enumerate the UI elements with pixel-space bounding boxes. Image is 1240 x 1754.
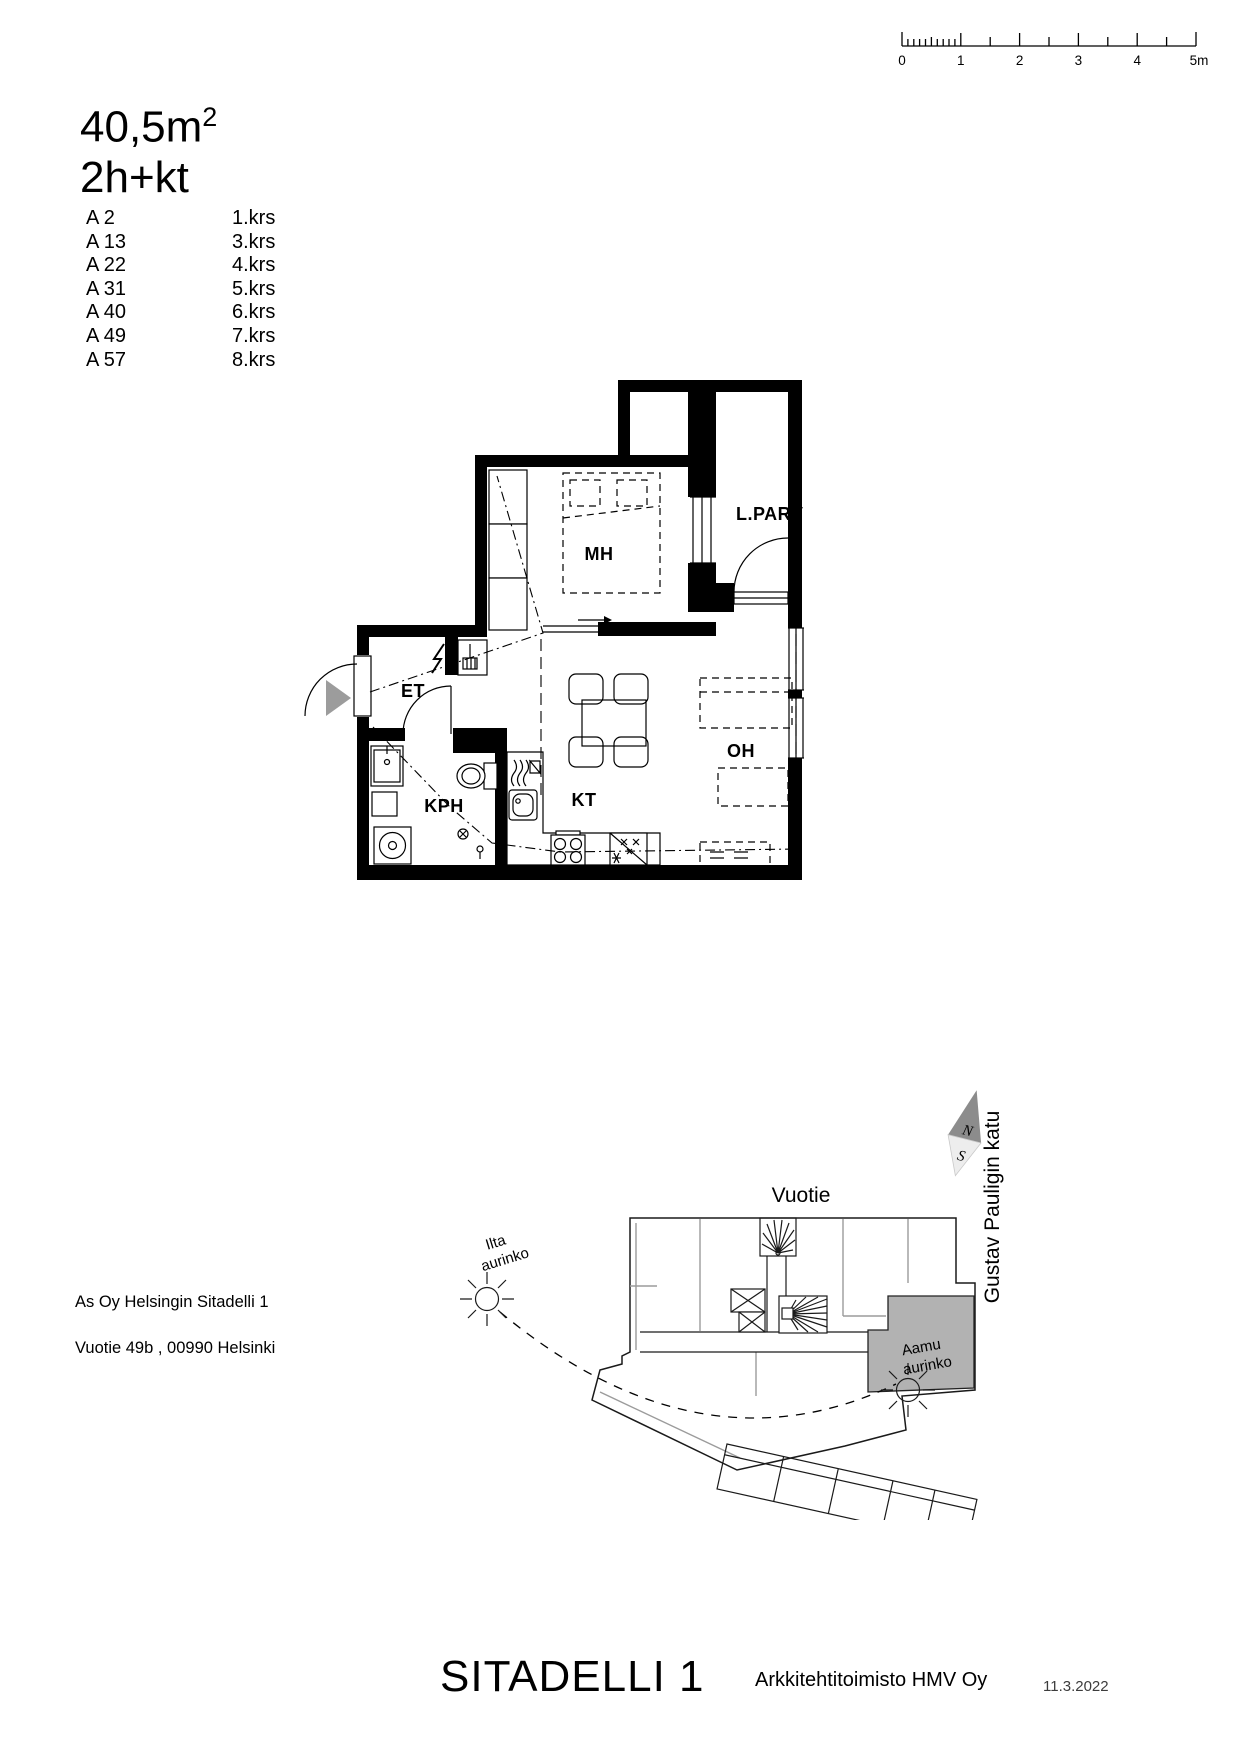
dining-set xyxy=(569,674,648,767)
street-label-gustav-pauligin-katu: Gustav Pauligin katu xyxy=(981,1111,1004,1304)
unit-floor: 7.krs xyxy=(232,325,275,347)
unit-floor: 1.krs xyxy=(232,207,275,229)
sofa xyxy=(700,678,792,728)
evening-sun-icon xyxy=(460,1272,514,1326)
floor-plan: MH L.PARV ET KPH KT OH xyxy=(280,365,810,890)
dishwasher xyxy=(610,833,647,865)
unit-id: A 2 xyxy=(86,207,232,231)
sliding-door-opening xyxy=(543,626,598,632)
project-title: SITADELLI 1 xyxy=(440,1652,705,1702)
area-exponent: 2 xyxy=(202,102,217,132)
stair-tower xyxy=(760,1218,796,1256)
apartment-row: A 406.krs xyxy=(86,301,275,325)
street-label-vuotie: Vuotie xyxy=(772,1184,831,1207)
unit-id: A 57 xyxy=(86,349,232,373)
floor-plan-sheet: 40,5m2 2h+kt A 21.krs A 133.krs A 224.kr… xyxy=(0,0,1240,1754)
apartment-row: A 133.krs xyxy=(86,231,275,255)
unit-floor: 5.krs xyxy=(232,278,275,300)
scale-label: 1 xyxy=(957,53,965,68)
room-label-balcony: L.PARV xyxy=(736,504,803,524)
stove xyxy=(551,831,585,865)
entry-direction-arrow xyxy=(326,680,351,716)
unit-id: A 31 xyxy=(86,278,232,302)
apartment-row: A 224.krs xyxy=(86,254,275,278)
scale-label: 5m xyxy=(1190,53,1209,68)
housing-company-name: As Oy Helsingin Sitadelli 1 xyxy=(75,1292,269,1312)
scale-ruler xyxy=(902,32,1196,46)
apartment-row: A 21.krs xyxy=(86,207,275,231)
street-address: Vuotie 49b , 00990 Helsinki xyxy=(75,1338,275,1358)
apartment-row: A 497.krs xyxy=(86,325,275,349)
sun-path-arc xyxy=(500,1312,896,1418)
window-bedroom-balcony xyxy=(690,497,716,563)
room-label-bathroom: KPH xyxy=(424,796,464,816)
elevator-shaft xyxy=(731,1289,765,1332)
scale-label: 3 xyxy=(1075,53,1083,68)
apartment-layout: 2h+kt xyxy=(80,153,217,203)
site-plan: N S Vuotie Gustav Pauligin katu Ilta aur… xyxy=(430,1080,1030,1520)
drawing-date: 11.3.2022 xyxy=(1043,1678,1109,1695)
balcony-door xyxy=(734,538,788,604)
toilet xyxy=(457,763,497,789)
apartment-area: 40,5m2 xyxy=(80,92,217,153)
shower-valve xyxy=(477,846,483,859)
apartment-list: A 21.krs A 133.krs A 224.krs A 315.krs A… xyxy=(86,207,275,372)
title-block: 40,5m2 2h+kt xyxy=(80,92,217,203)
scale-bar: 0 1 2 3 4 5m xyxy=(898,28,1218,74)
unit-floor: 3.krs xyxy=(232,231,275,253)
unit-id: A 49 xyxy=(86,325,232,349)
bathroom-cabinet xyxy=(372,792,397,816)
unit-floor: 8.krs xyxy=(232,349,275,371)
room-label-bedroom: MH xyxy=(585,544,614,564)
electrical-symbol xyxy=(432,644,444,673)
bed xyxy=(563,473,660,593)
unit-floor: 6.krs xyxy=(232,301,275,323)
apartment-row: A 578.krs xyxy=(86,349,275,373)
bathroom-sink xyxy=(371,746,403,786)
floor-drain xyxy=(458,829,468,839)
unit-id: A 22 xyxy=(86,254,232,278)
scale-label: 0 xyxy=(898,53,906,68)
washing-machine xyxy=(374,827,411,864)
room-label-living: OH xyxy=(727,741,755,761)
scale-label: 2 xyxy=(1016,53,1024,68)
unit-floor: 4.krs xyxy=(232,254,275,276)
south-unit-band xyxy=(717,1444,977,1520)
tv-bench xyxy=(700,842,770,866)
room-label-kitchen: KT xyxy=(572,790,597,810)
entry-door xyxy=(305,656,371,716)
scale-label: 4 xyxy=(1133,53,1141,68)
spiral-stair xyxy=(779,1296,827,1333)
architect-office: Arkkitehtitoimisto HMV Oy xyxy=(755,1669,987,1692)
building-partitions xyxy=(600,1219,908,1458)
armchair xyxy=(718,768,788,806)
room-label-entry: ET xyxy=(401,681,425,701)
ventilation-symbol xyxy=(530,761,540,773)
wardrobe xyxy=(489,470,527,630)
apartment-row: A 315.krs xyxy=(86,278,275,302)
evening-sun-label: Ilta aurinko xyxy=(473,1226,531,1275)
unit-id: A 40 xyxy=(86,301,232,325)
unit-id: A 13 xyxy=(86,231,232,255)
